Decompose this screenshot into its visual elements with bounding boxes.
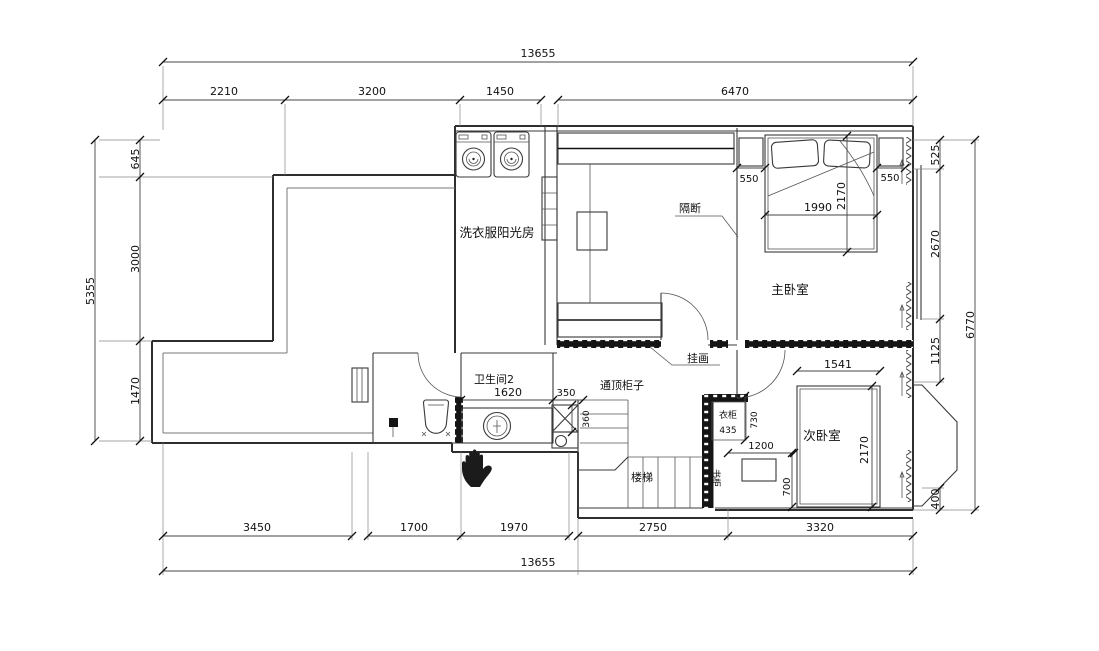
hallway: 挂画 通顶柜子: [600, 347, 720, 392]
dim-nightstand-left: 550: [739, 174, 758, 185]
dim-bottom-total: 13655: [521, 556, 556, 569]
cloakroom: [558, 133, 734, 340]
door-swing-arc: [661, 293, 708, 340]
dim-bottom-seg-2: 1970: [500, 521, 528, 534]
dim-top-seg-1: 3200: [358, 85, 386, 98]
floor-drain: [389, 418, 398, 427]
vanity-counter: [462, 408, 553, 443]
room-label-bathroom2: 卫生间2: [474, 372, 514, 386]
dim-bottom-seg-4: 3320: [806, 521, 834, 534]
hanging-picture-label: 挂画: [687, 351, 709, 365]
door-swing-arc: [737, 350, 785, 398]
room-label-stairs: 楼梯: [631, 470, 653, 484]
partition-label: 隔断: [679, 201, 701, 215]
dim-wardrobe-depth: 730: [750, 411, 760, 428]
bookcase-label: 书柜: [710, 469, 722, 487]
desk: [742, 459, 776, 481]
dim-desk-depth: 700: [782, 477, 793, 496]
wardrobe-label: 衣柜: [719, 409, 737, 421]
dim-master-bed-width: 1990: [804, 201, 832, 214]
window-laundry-partition: [542, 177, 557, 240]
toilet-icon: [422, 400, 450, 436]
dim-left-seg-0: 645: [129, 149, 142, 170]
dim-desk-zone-width: 1200: [748, 441, 773, 452]
cad-floor-plan-page: 洗衣服阳光房 主卧室 隔断 挂画 通顶柜子: [0, 0, 1099, 651]
dim-secondary-bed-depth: 2170: [858, 436, 871, 464]
dim-right-seg-2: 1125: [929, 337, 942, 365]
dim-bottom-seg-3: 2750: [639, 521, 667, 534]
window-bathroom-west: [352, 368, 368, 402]
washing-machine-icon: [456, 132, 491, 177]
dim-left-total: 5355: [84, 277, 97, 305]
stairs: 楼梯 书柜: [578, 400, 722, 508]
master-bed-icon: [765, 135, 877, 252]
room-label-master-bedroom: 主卧室: [771, 282, 809, 297]
dim-right-total: 6770: [964, 311, 977, 339]
dim-left-seg-1: 3000: [129, 245, 142, 273]
dim-shaft-width: 360: [582, 410, 592, 427]
washing-machine-icon: [494, 132, 529, 177]
dim-bottom-seg-0: 3450: [243, 521, 271, 534]
master-bedroom: 主卧室 隔断: [675, 135, 903, 297]
dim-right-seg-0: 525: [929, 145, 942, 166]
laundry-room: 洗衣服阳光房: [456, 132, 535, 240]
dim-bath-vanity-width: 1620: [494, 386, 522, 399]
hand-grab-cursor-icon: [462, 450, 492, 487]
nightstand-right: [879, 138, 903, 166]
dim-top-seg-0: 2210: [210, 85, 238, 98]
window-zigzag-east: [900, 137, 914, 502]
room-label-laundry: 洗衣服阳光房: [459, 225, 534, 240]
dim-top-seg-3: 6470: [721, 85, 749, 98]
dim-secondary-bed-width: 1541: [824, 358, 852, 371]
bathroom2: 卫生间2: [389, 353, 578, 448]
dim-left-seg-2: 1470: [129, 377, 142, 405]
dim-right-seg-1: 2670: [929, 230, 942, 258]
dim-wardrobe-width: 435: [719, 426, 736, 436]
hanging-picture-callout: 挂画: [650, 347, 720, 365]
door-swing-arc: [418, 353, 461, 397]
partition-callout: 隔断: [675, 201, 738, 237]
dim-right-seg-3: 400: [929, 489, 942, 510]
full-height-cabinet-label: 通顶柜子: [600, 379, 644, 392]
floor-plan-canvas[interactable]: 洗衣服阳光房 主卧室 隔断 挂画 通顶柜子: [0, 0, 1099, 651]
nightstand-left: [739, 138, 763, 166]
dim-shaft-offset: 350: [556, 388, 575, 399]
dim-nightstand-right: 550: [880, 173, 899, 184]
dim-top-seg-2: 1450: [486, 85, 514, 98]
dim-bottom-seg-1: 1700: [400, 521, 428, 534]
dim-top-total: 13655: [521, 47, 556, 60]
room-label-secondary-bedroom: 次卧室: [803, 428, 841, 443]
dresser: [577, 212, 607, 250]
secondary-bedroom: 衣柜 次卧室: [712, 350, 880, 507]
dim-master-bed-depth: 2170: [835, 182, 848, 210]
shaft: [552, 405, 578, 448]
dimension-lines: [91, 58, 979, 575]
